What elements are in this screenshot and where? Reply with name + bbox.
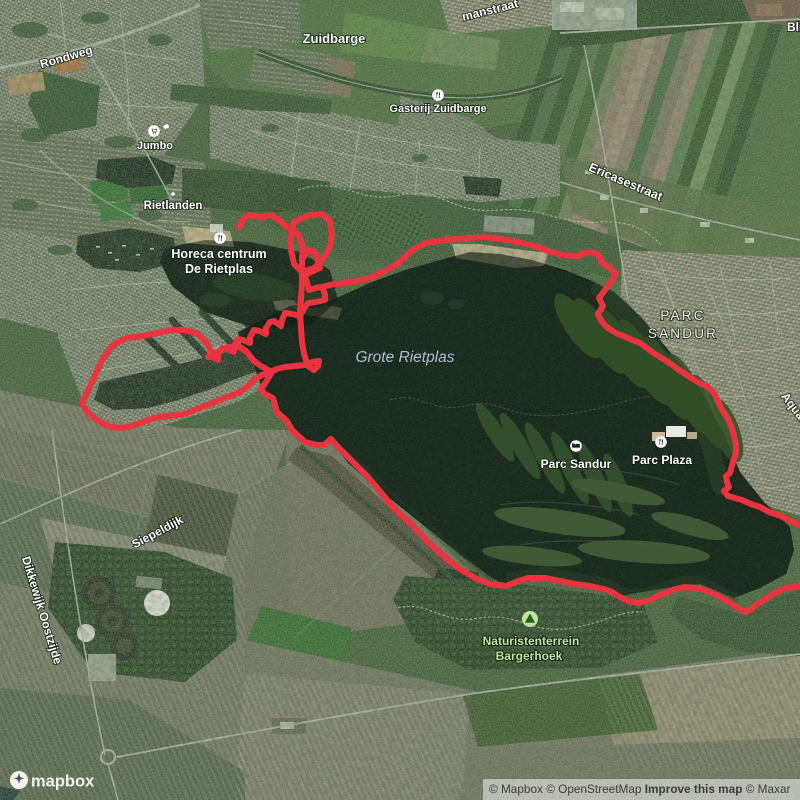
svg-text:Horeca centrum: Horeca centrum (171, 247, 266, 261)
svg-text:Parc Plaza: Parc Plaza (632, 453, 692, 467)
svg-text:De Rietplas: De Rietplas (185, 262, 253, 276)
svg-text:Parc Sandur: Parc Sandur (541, 457, 612, 471)
svg-text:Zuidbarge: Zuidbarge (303, 31, 366, 46)
svg-text:Bargerhoek: Bargerhoek (496, 649, 563, 663)
svg-text:Grote Rietplas: Grote Rietplas (355, 349, 454, 366)
svg-text:SANDUR: SANDUR (648, 326, 718, 341)
svg-text:PARC: PARC (660, 308, 705, 323)
svg-text:Naturistenterrein: Naturistenterrein (483, 634, 580, 648)
svg-text:Rietlanden: Rietlanden (144, 200, 203, 212)
svg-text:© Mapbox © OpenStreetMap Impro: © Mapbox © OpenStreetMap Improve this ma… (489, 782, 791, 796)
svg-text:Gasterij Zuidbarge: Gasterij Zuidbarge (389, 103, 486, 115)
svg-text:Jumbo: Jumbo (137, 140, 173, 152)
svg-text:Blik: Blik (787, 20, 800, 34)
svg-text:mapbox: mapbox (31, 773, 95, 791)
